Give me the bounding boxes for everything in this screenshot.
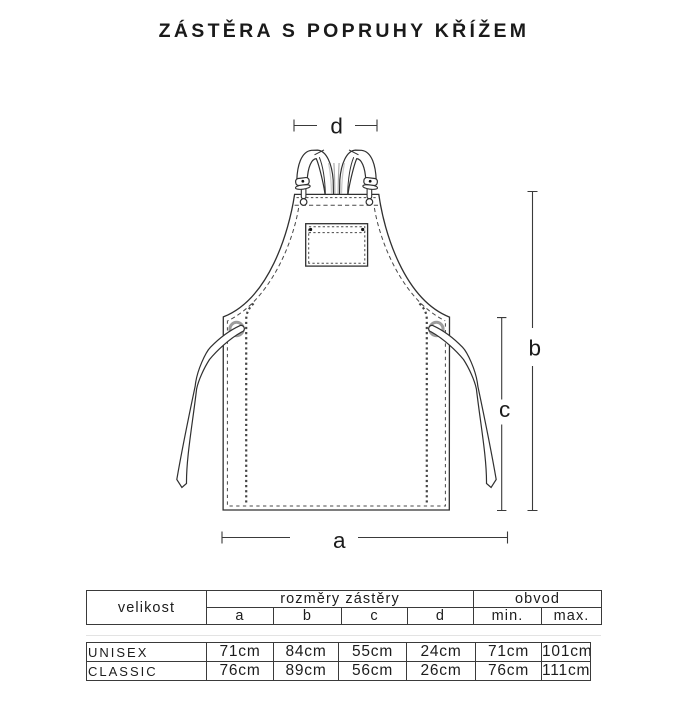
svg-text:b: b [529,336,542,361]
svg-text:c: c [499,397,510,422]
svg-text:d: d [330,113,343,138]
svg-text:a: a [333,528,346,553]
